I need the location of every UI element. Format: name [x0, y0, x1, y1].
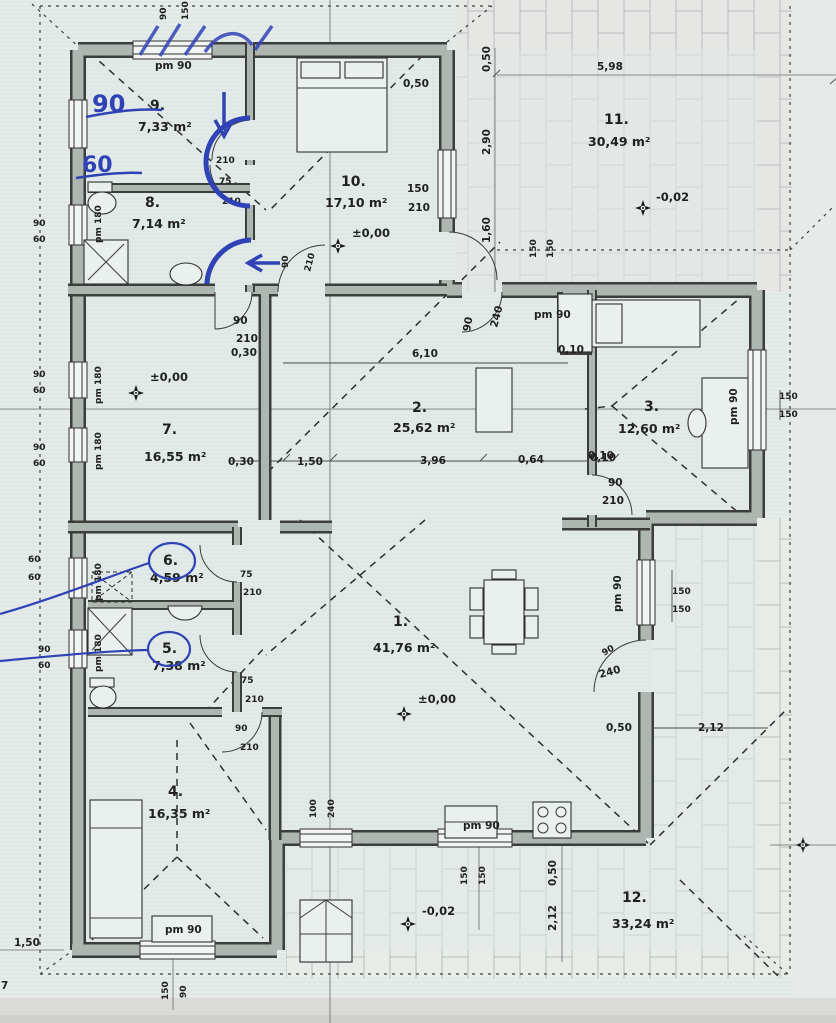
window-room1-right	[637, 560, 655, 625]
room-1-level: ±0,00	[418, 692, 456, 706]
bed-room10	[297, 58, 387, 152]
bl-door-240: 240	[327, 799, 337, 818]
bed-room3	[592, 300, 700, 347]
kdoor-90: 90	[461, 316, 475, 332]
room-11-level: -0,02	[656, 190, 689, 204]
window-left-2	[69, 205, 87, 245]
room-4-number: 4.	[168, 784, 183, 800]
lm-90-2: 90	[33, 443, 46, 453]
hall-door-210: 210	[236, 333, 258, 345]
r1-win-150b: 150	[672, 605, 691, 615]
room-11-number: 11.	[604, 112, 629, 128]
floor-plan-drawing: 9. 7,33 m² 8. 7,14 m² 10. 17,10 m² ±0,00…	[0, 0, 836, 1023]
d6-210: 210	[243, 588, 262, 598]
door-threshold-terrace	[300, 829, 352, 847]
room-7-number: 7.	[162, 422, 177, 438]
b-212: 2,12	[547, 905, 559, 931]
r3-win-150b: 150	[779, 410, 798, 420]
window-left-6	[69, 630, 87, 668]
room-12-number: 12.	[622, 890, 647, 906]
r1-win-150a: 150	[672, 587, 691, 597]
lm-60-0: 60	[33, 235, 46, 245]
pm180-2: pm 180	[94, 432, 104, 470]
window-room4	[140, 941, 215, 959]
dim-150m: 1,50	[297, 456, 323, 468]
b4-150: 150	[161, 981, 171, 1000]
sink-room8	[170, 263, 202, 285]
dim-050-col: 0,50	[481, 46, 493, 72]
r3-win-pm90: pm 90	[728, 388, 740, 425]
room-10-level: ±0,00	[352, 226, 390, 240]
door10-90: 90	[281, 255, 291, 268]
room-1-area: 41,76 m²	[373, 640, 435, 655]
toilet-room5	[90, 678, 116, 708]
b4-90: 90	[179, 985, 189, 998]
room-1-number: 1.	[393, 614, 408, 630]
d4-210: 210	[240, 743, 259, 753]
lm-90-0: 90	[33, 219, 46, 229]
lm-90-1: 90	[33, 370, 46, 380]
win10-height: 210	[408, 202, 430, 214]
window-room3	[748, 350, 766, 450]
room-10-area: 17,10 m²	[325, 195, 387, 210]
dim-030-b: 0,30	[228, 456, 254, 468]
room-6-area: 4,59 m²	[150, 570, 204, 585]
room4-pm90: pm 90	[165, 924, 202, 936]
dim-150-bl: 1,50	[14, 937, 40, 949]
kitchen-stove	[533, 802, 571, 838]
room-2-area: 25,62 m²	[393, 420, 455, 435]
window-left-5	[69, 558, 87, 598]
bed-room4	[90, 800, 142, 938]
dim-010-a: 0,10	[558, 344, 584, 356]
d5-210: 210	[245, 695, 264, 705]
room-2-number: 2.	[412, 400, 427, 416]
dim-290-col: 2,90	[481, 129, 493, 155]
pm180-0: pm 180	[94, 205, 104, 243]
floor-plan-page: 9. 7,33 m² 8. 7,14 m² 10. 17,10 m² ±0,00…	[0, 0, 836, 1023]
d4-90: 90	[235, 724, 248, 734]
dim-598: 5,98	[597, 61, 623, 73]
b-150b: 150	[478, 866, 488, 885]
room-8-area: 7,14 m²	[132, 216, 186, 231]
lm-90-4: 90	[38, 645, 51, 655]
lm-60-1: 60	[33, 386, 46, 396]
cabinet-hall	[476, 368, 512, 432]
room-9-number: 9.	[150, 98, 165, 114]
lm-60-4: 60	[38, 661, 51, 671]
dim-150-top: 150	[181, 1, 191, 20]
room-12-area: 33,24 m²	[612, 916, 674, 931]
d6-75: 75	[240, 570, 253, 580]
room-6-number: 6.	[163, 553, 178, 569]
dim-610: 6,10	[412, 348, 438, 360]
room-11-area: 30,49 m²	[588, 134, 650, 149]
lm-60-3a: 60	[28, 555, 41, 565]
room-12-level: -0,02	[422, 904, 455, 918]
room-4-area: 16,35 m²	[148, 806, 210, 821]
dim-212-r: 2,12	[698, 722, 724, 734]
b-050: 0,50	[547, 860, 559, 886]
shower-room8	[84, 240, 128, 284]
win10-width: 150	[407, 183, 429, 195]
dim-050-r: 0,50	[606, 722, 632, 734]
exterior-steps	[300, 900, 352, 962]
kcounter-pm90: pm 90	[534, 309, 571, 321]
room-7-area: 16,55 m²	[144, 449, 206, 464]
dim-396: 3,96	[420, 455, 446, 467]
room-3-area: 12,60 m²	[618, 421, 680, 436]
r3-win-150a: 150	[779, 392, 798, 402]
window-top-parapet: pm 90	[155, 60, 192, 72]
room-5-number: 5.	[162, 641, 177, 657]
d5-75: 75	[241, 676, 254, 686]
dim-90-top: 90	[159, 7, 169, 20]
r3-door-210: 210	[602, 495, 624, 507]
door9-210: 210	[216, 156, 235, 166]
room-9-area: 7,33 m²	[138, 119, 192, 134]
room-7-level: ±0,00	[150, 370, 188, 384]
window-left-4	[69, 428, 87, 462]
lm-60-2: 60	[33, 459, 46, 469]
window-left-1	[69, 100, 87, 148]
r3-door-90: 90	[608, 477, 623, 489]
dim-030-a: 0,30	[231, 347, 257, 359]
dim-050-room10: 0,50	[403, 78, 429, 90]
window-room10	[438, 150, 456, 218]
bl-door-100: 100	[309, 799, 319, 818]
dim-160-col: 1,60	[481, 217, 493, 243]
r3-010: 0,10	[588, 450, 614, 462]
r1-win-pm90: pm 90	[612, 575, 624, 612]
room-3-number: 3.	[644, 399, 659, 415]
lm-60-3b: 60	[28, 573, 41, 583]
dim-150-b: 150	[546, 239, 556, 258]
room-10-number: 10.	[341, 174, 366, 190]
hall-door-90: 90	[233, 315, 248, 327]
window-left-3	[69, 362, 87, 398]
dim-150-a: 150	[529, 239, 539, 258]
sink-pm90: pm 90	[463, 820, 500, 832]
door9-75: 75	[219, 177, 232, 187]
margin-7: 7	[1, 980, 8, 992]
b-150a: 150	[460, 866, 470, 885]
dim-064: 0,64	[518, 454, 544, 466]
room-8-number: 8.	[145, 195, 160, 211]
pm180-1: pm 180	[94, 366, 104, 404]
